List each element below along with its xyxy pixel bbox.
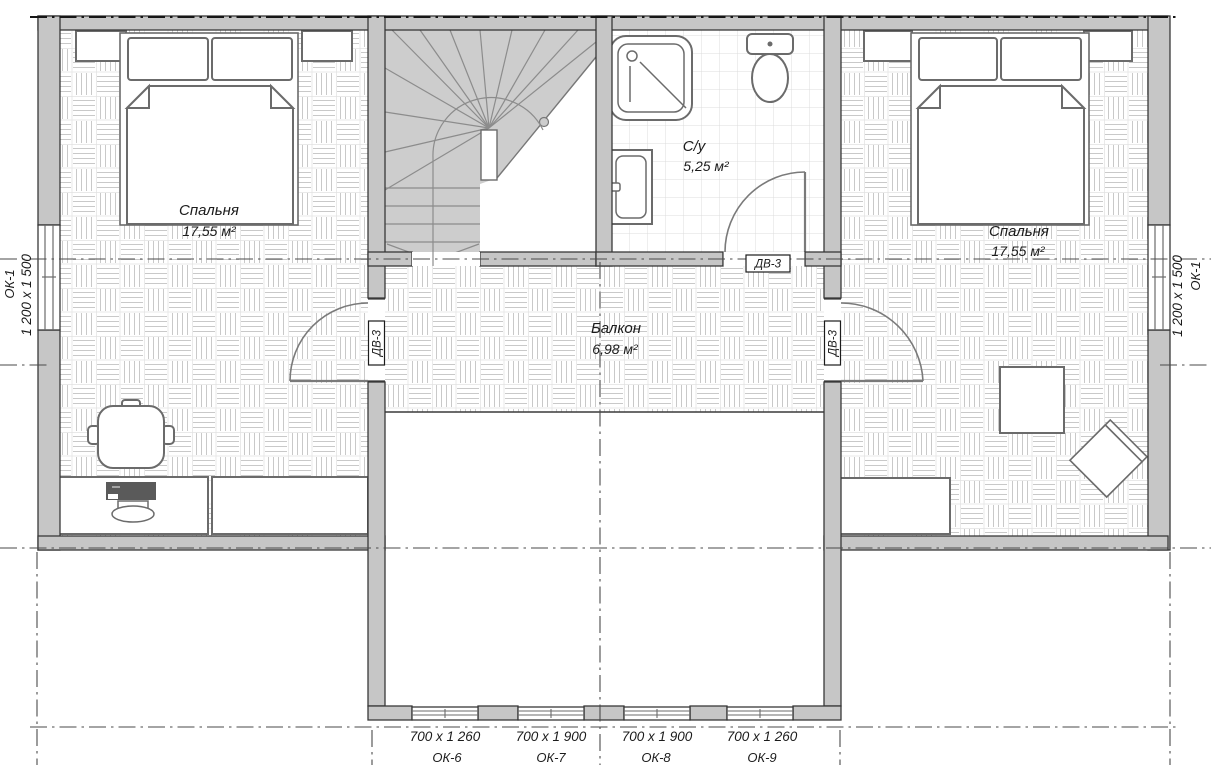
pillow	[1001, 38, 1081, 80]
label-ok9-code: ОК-9	[747, 750, 776, 765]
pillow	[128, 38, 208, 80]
window-ok1-right	[1148, 225, 1170, 330]
wall-strip-right-lower	[824, 382, 841, 706]
wall-right-upper	[1148, 16, 1170, 225]
label-bathroom-name: С/у	[683, 138, 707, 155]
window-ok9	[727, 707, 793, 720]
pillow	[919, 38, 997, 80]
wall-strip-left-lower	[368, 382, 385, 706]
door-tag-balcony-left: ДВ-3	[372, 329, 384, 358]
window-ok7	[518, 707, 584, 720]
label-balcony-name: Балкон	[591, 320, 641, 337]
label-ok1-right-size: 1 200 x 1 500	[1170, 255, 1185, 337]
desk-chair-seat	[112, 506, 154, 522]
nightstand	[302, 31, 352, 61]
label-ok1-left-size: 1 200 x 1 500	[19, 254, 34, 336]
nightstand	[864, 31, 912, 61]
floor-plan-drawing: ДВ-3 ДВ-3 ДВ-3 Спальня 17,55 м² Спальня …	[0, 0, 1211, 765]
pillow	[212, 38, 292, 80]
nightstand	[1084, 31, 1132, 61]
window-ok1-left	[38, 225, 60, 330]
label-bedroom-right-name: Спальня	[989, 223, 1049, 240]
label-ok7-size: 700 x 1 900	[516, 729, 587, 744]
window-ok8	[624, 707, 690, 720]
floor-plan: ДВ-3 ДВ-3 ДВ-3 Спальня 17,55 м² Спальня …	[0, 0, 1211, 765]
label-ok9-size: 700 x 1 260	[727, 729, 798, 744]
wall-stairs-bath-divider	[596, 16, 612, 266]
stair-newel	[481, 130, 497, 180]
wall-balcony-bottom-a	[368, 706, 412, 720]
label-balcony-area: 6,98 м²	[592, 341, 639, 357]
window-ok6	[412, 707, 478, 720]
wall-left-upper	[38, 16, 60, 225]
label-ok8-code: ОК-8	[641, 750, 671, 765]
label-bathroom-area: 5,25 м²	[683, 158, 730, 174]
door-tag-bathroom: ДВ-3	[753, 259, 782, 271]
label-ok6-size: 700 x 1 260	[410, 729, 481, 744]
balcony-void	[385, 412, 826, 706]
label-ok8-size: 700 x 1 900	[622, 729, 693, 744]
label-ok6-code: ОК-6	[432, 750, 462, 765]
shower	[610, 36, 692, 120]
monitor-detail	[108, 494, 118, 499]
table	[1000, 367, 1064, 433]
label-ok7-code: ОК-7	[536, 750, 566, 765]
door-tag-balcony-right: ДВ-3	[828, 329, 840, 358]
label-ok1-right-code: ОК-1	[1188, 261, 1203, 290]
label-bedroom-left-area: 17,55 м²	[182, 223, 237, 239]
bench	[840, 478, 950, 534]
wall-balcony-bottom-b	[793, 706, 841, 720]
nightstand	[76, 31, 126, 61]
label-bedroom-right-area: 17,55 м²	[991, 243, 1046, 259]
wall-left-lower	[38, 330, 60, 550]
label-bedroom-left-name: Спальня	[179, 202, 239, 219]
blanket	[918, 86, 1084, 224]
wall-balcony-pier	[478, 706, 518, 720]
balcony-floor	[385, 264, 826, 412]
wall-balcony-pier	[690, 706, 727, 720]
wall-right-lower	[1148, 330, 1170, 550]
wall-balcony-pier	[584, 706, 624, 720]
dresser	[212, 477, 368, 534]
label-ok1-left-code: ОК-1	[2, 269, 17, 298]
